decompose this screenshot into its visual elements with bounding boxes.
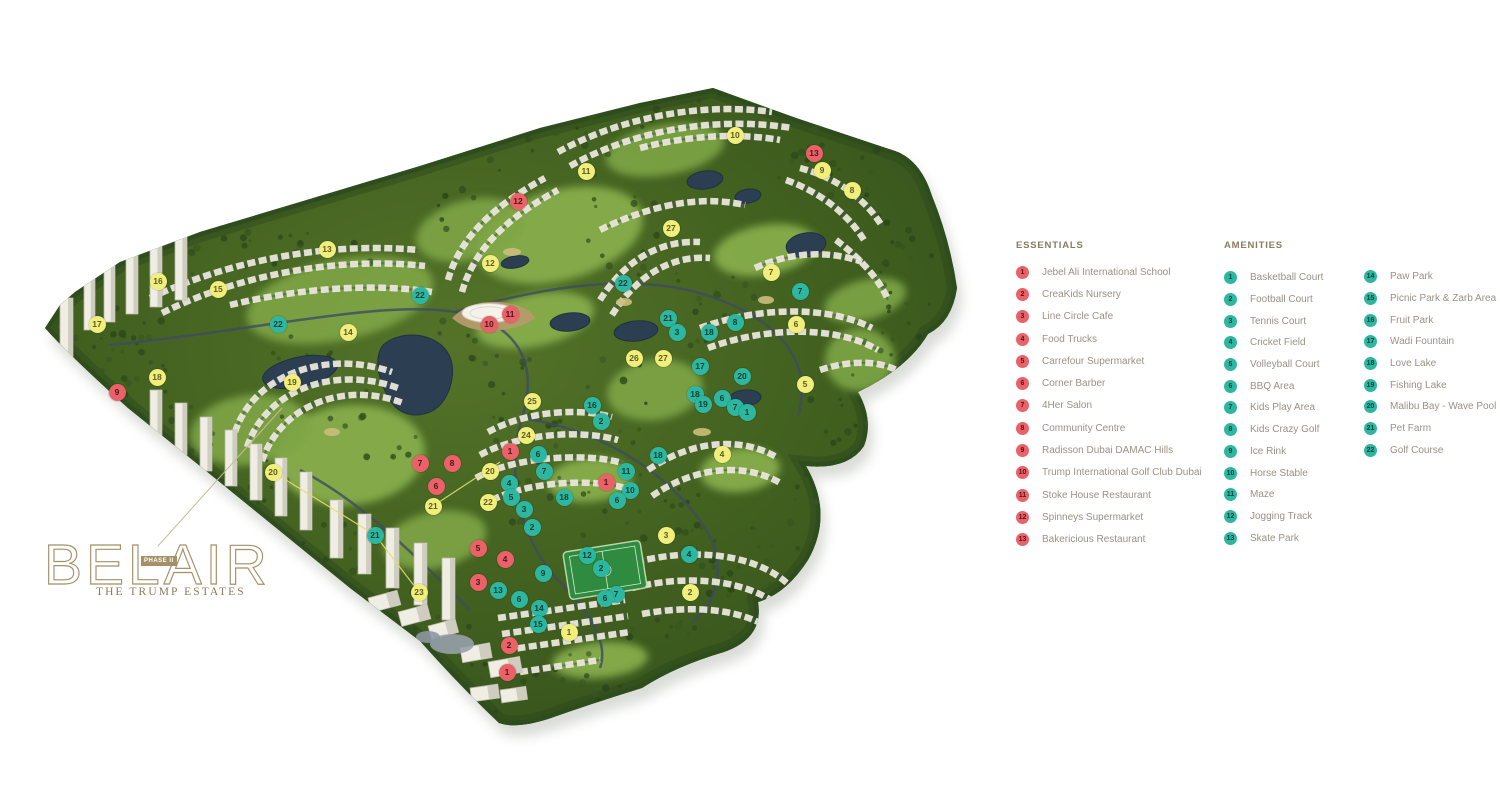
legend-badge: 2 (1016, 288, 1029, 301)
map-marker-yellow-26: 26 (626, 350, 643, 367)
legend-label: Kids Crazy Golf (1250, 424, 1319, 435)
legend-label: Football Court (1250, 294, 1313, 305)
legend-badge: 19 (1364, 379, 1377, 392)
legend-item: 22Golf Course (1364, 440, 1496, 462)
map-marker-teal-22: 22 (412, 287, 429, 304)
map-marker-red-10: 10 (481, 316, 498, 333)
logo-phase-badge: PHASE II (141, 556, 177, 566)
legend-badge: 1 (1016, 266, 1029, 279)
legend-label: Kids Play Area (1250, 402, 1315, 413)
legend-item: 18Love Lake (1364, 353, 1496, 375)
legend-badge: 8 (1016, 422, 1029, 435)
map-marker-yellow-12: 12 (482, 255, 499, 272)
legend-item: 7Kids Play Area (1224, 397, 1323, 419)
legend-badge: 17 (1364, 335, 1377, 348)
map-marker-yellow-16: 16 (150, 273, 167, 290)
map-marker-red-6: 6 (428, 478, 445, 495)
map-marker-teal-3: 3 (516, 501, 533, 518)
map-marker-yellow-8: 8 (844, 182, 861, 199)
essentials-list: 1Jebel Ali International School2CreaKids… (1016, 261, 1202, 551)
amenities-header: AMENITIES (1224, 240, 1283, 251)
legend-label: Wadi Fountain (1390, 336, 1454, 347)
map-marker-red-2: 2 (501, 637, 518, 654)
legend-label: Skate Park (1250, 533, 1299, 544)
map-marker-teal-18: 18 (556, 489, 573, 506)
legend-item: 12Jogging Track (1224, 506, 1323, 528)
map-marker-red-11: 11 (502, 306, 519, 323)
map-marker-teal-13: 13 (490, 582, 507, 599)
map-marker-yellow-13: 13 (319, 241, 336, 258)
legend-item: 15Picnic Park & Zarb Area (1364, 288, 1496, 310)
map-marker-yellow-21: 21 (425, 498, 442, 515)
legend-item: 10Horse Stable (1224, 462, 1323, 484)
map-marker-red-9: 9 (109, 384, 126, 401)
legend-label: Paw Park (1390, 271, 1433, 282)
map-marker-red-1: 1 (598, 474, 615, 491)
legend-label: Bakericious Restaurant (1042, 534, 1145, 545)
map-marker-yellow-27: 27 (655, 350, 672, 367)
map-marker-red-12: 12 (510, 193, 527, 210)
legend-badge: 6 (1224, 380, 1237, 393)
legend-item: 5Volleyball Court (1224, 354, 1323, 376)
legend-badge: 14 (1364, 270, 1377, 283)
map-marker-yellow-19: 19 (284, 374, 301, 391)
legend-badge: 8 (1224, 423, 1237, 436)
legend-label: Love Lake (1390, 358, 1436, 369)
logo-subtitle: THE TRUMP ESTATES (96, 586, 246, 598)
map-marker-teal-16: 16 (584, 397, 601, 414)
legend-item: 3Tennis Court (1224, 310, 1323, 332)
map-marker-teal-7: 7 (536, 463, 553, 480)
map-marker-yellow-10: 10 (727, 127, 744, 144)
map-marker-teal-4: 4 (681, 546, 698, 563)
amenities-list-col2: 14Paw Park15Picnic Park & Zarb Area16Fru… (1364, 266, 1496, 461)
map-marker-teal-21: 21 (367, 527, 384, 544)
legend-label: Jebel Ali International School (1042, 267, 1170, 278)
legend-item: 8Kids Crazy Golf (1224, 419, 1323, 441)
legend-item: 1Jebel Ali International School (1016, 261, 1202, 283)
legend-badge: 5 (1016, 355, 1029, 368)
map-marker-teal-14: 14 (531, 600, 548, 617)
map-marker-teal-15: 15 (530, 616, 547, 633)
legend-badge: 18 (1364, 357, 1377, 370)
map-marker-yellow-25: 25 (524, 393, 541, 410)
legend-label: Trump International Golf Club Dubai (1042, 467, 1202, 478)
legend-label: Basketball Court (1250, 272, 1323, 283)
legend-item: 6Corner Barber (1016, 372, 1202, 394)
map-marker-yellow-15: 15 (210, 281, 227, 298)
map-marker-teal-18: 18 (701, 324, 718, 341)
amenities-list-col1: 1Basketball Court2Football Court3Tennis … (1224, 267, 1323, 549)
legend-label: Picnic Park & Zarb Area (1390, 293, 1496, 304)
map-marker-teal-3: 3 (669, 324, 686, 341)
legend-badge: 15 (1364, 292, 1377, 305)
legend-badge: 3 (1224, 315, 1237, 328)
legend-badge: 6 (1016, 377, 1029, 390)
map-marker-yellow-17: 17 (89, 316, 106, 333)
map-marker-teal-2: 2 (593, 560, 610, 577)
legend-badge: 10 (1224, 467, 1237, 480)
legend-badge: 11 (1016, 489, 1029, 502)
legend-label: Volleyball Court (1250, 359, 1319, 370)
legend-label: Malibu Bay - Wave Pool (1390, 401, 1496, 412)
legend-label: Radisson Dubai DAMAC Hills (1042, 445, 1173, 456)
legend-item: 10Trump International Golf Club Dubai (1016, 462, 1202, 484)
map-marker-red-8: 8 (444, 455, 461, 472)
map-marker-red-4: 4 (497, 551, 514, 568)
legend-badge: 11 (1224, 488, 1237, 501)
map-marker-yellow-22: 22 (480, 494, 497, 511)
legend-label: Spinneys Supermarket (1042, 512, 1143, 523)
legend-label: Horse Stable (1250, 468, 1308, 479)
legend-badge: 4 (1016, 333, 1029, 346)
map-marker-yellow-14: 14 (340, 324, 357, 341)
legend-item: 3Line Circle Cafe (1016, 306, 1202, 328)
legend-item: 2Football Court (1224, 289, 1323, 311)
legend-item: 4Cricket Field (1224, 332, 1323, 354)
legend-item: 19Fishing Lake (1364, 374, 1496, 396)
legend-label: Community Centre (1042, 423, 1125, 434)
legend-item: 9Ice Rink (1224, 441, 1323, 463)
legend-badge: 7 (1016, 399, 1029, 412)
legend-label: CreaKids Nursery (1042, 289, 1121, 300)
legend-item: 4Food Trucks (1016, 328, 1202, 350)
legend-label: Ice Rink (1250, 446, 1286, 457)
legend-item: 16Fruit Park (1364, 309, 1496, 331)
legend-badge: 9 (1224, 445, 1237, 458)
legend-badge: 13 (1224, 532, 1237, 545)
legend-badge: 5 (1224, 358, 1237, 371)
legend-label: Maze (1250, 489, 1274, 500)
legend-item: 21Pet Farm (1364, 418, 1496, 440)
map-marker-teal-6: 6 (609, 492, 626, 509)
essentials-header: ESSENTIALS (1016, 240, 1084, 251)
legend-badge: 12 (1016, 511, 1029, 524)
legend-label: Pet Farm (1390, 423, 1431, 434)
legend-item: 14Paw Park (1364, 266, 1496, 288)
map-marker-red-1: 1 (502, 443, 519, 460)
map-marker-red-13: 13 (806, 145, 823, 162)
legend-item: 13Bakericious Restaurant (1016, 529, 1202, 551)
legend-badge: 12 (1224, 510, 1237, 523)
legend-label: Tennis Court (1250, 316, 1306, 327)
legend-badge: 10 (1016, 466, 1029, 479)
legend-item: 6BBQ Area (1224, 375, 1323, 397)
map-marker-yellow-1: 1 (561, 624, 578, 641)
belair-logo: BELAIR PHASE II THE TRUMP ESTATES (38, 518, 268, 613)
map-marker-teal-19: 19 (695, 396, 712, 413)
map-marker-teal-11: 11 (618, 463, 635, 480)
legend-item: 9Radisson Dubai DAMAC Hills (1016, 439, 1202, 461)
legend-badge: 13 (1016, 533, 1029, 546)
map-marker-teal-22: 22 (615, 275, 632, 292)
legend-item: 20Malibu Bay - Wave Pool (1364, 396, 1496, 418)
map-marker-teal-17: 17 (692, 358, 709, 375)
legend-label: Fruit Park (1390, 315, 1433, 326)
legend-item: 5Carrefour Supermarket (1016, 350, 1202, 372)
legend-badge: 3 (1016, 310, 1029, 323)
legend-item: 2CreaKids Nursery (1016, 283, 1202, 305)
legend-label: BBQ Area (1250, 381, 1294, 392)
legend-item: 74Her Salon (1016, 395, 1202, 417)
map-marker-yellow-24: 24 (518, 427, 535, 444)
legend-label: Golf Course (1390, 445, 1443, 456)
legend-item: 11Stoke House Restaurant (1016, 484, 1202, 506)
legend-badge: 4 (1224, 336, 1237, 349)
legend-item: 17Wadi Fountain (1364, 331, 1496, 353)
map-marker-teal-8: 8 (727, 314, 744, 331)
legend-item: 1Basketball Court (1224, 267, 1323, 289)
legend-badge: 20 (1364, 400, 1377, 413)
map-marker-yellow-20: 20 (265, 464, 282, 481)
map-marker-teal-9: 9 (535, 565, 552, 582)
map-marker-teal-22: 22 (270, 316, 287, 333)
legend-badge: 1 (1224, 271, 1237, 284)
legend-item: 13Skate Park (1224, 527, 1323, 549)
map-marker-yellow-3: 3 (658, 527, 675, 544)
legend-label: 4Her Salon (1042, 400, 1092, 411)
legend-label: Carrefour Supermarket (1042, 356, 1144, 367)
map-marker-yellow-23: 23 (411, 584, 428, 601)
legend-badge: 7 (1224, 401, 1237, 414)
map-marker-yellow-11: 11 (578, 163, 595, 180)
legend-label: Jogging Track (1250, 511, 1312, 522)
legend-badge: 22 (1364, 444, 1377, 457)
map-marker-yellow-18: 18 (149, 369, 166, 386)
map-marker-yellow-5: 5 (797, 376, 814, 393)
legend-label: Line Circle Cafe (1042, 311, 1113, 322)
map-marker-teal-18: 18 (650, 447, 667, 464)
map-marker-teal-1: 1 (739, 404, 756, 421)
legend-badge: 21 (1364, 422, 1377, 435)
map-marker-teal-12: 12 (579, 547, 596, 564)
legend-label: Fishing Lake (1390, 380, 1447, 391)
map-marker-teal-5: 5 (503, 489, 520, 506)
map-marker-yellow-20: 20 (482, 463, 499, 480)
map-marker-teal-6: 6 (530, 446, 547, 463)
legend-badge: 16 (1364, 314, 1377, 327)
map-marker-red-3: 3 (470, 574, 487, 591)
map-marker-red-5: 5 (470, 540, 487, 557)
legend-badge: 9 (1016, 444, 1029, 457)
map-marker-teal-20: 20 (734, 368, 751, 385)
map-marker-yellow-7: 7 (763, 264, 780, 281)
legend-label: Corner Barber (1042, 378, 1105, 389)
map-marker-yellow-6: 6 (788, 316, 805, 333)
map-marker-yellow-27: 27 (663, 220, 680, 237)
legend-item: 8Community Centre (1016, 417, 1202, 439)
map-marker-yellow-2: 2 (682, 584, 699, 601)
legend-label: Cricket Field (1250, 337, 1306, 348)
legend-item: 11Maze (1224, 484, 1323, 506)
map-marker-red-7: 7 (412, 455, 429, 472)
legend-label: Stoke House Restaurant (1042, 490, 1151, 501)
map-marker-teal-2: 2 (593, 413, 610, 430)
map-marker-teal-2: 2 (524, 519, 541, 536)
map-marker-teal-7: 7 (792, 283, 809, 300)
map-marker-teal-6: 6 (511, 591, 528, 608)
map-marker-yellow-4: 4 (714, 446, 731, 463)
legend-badge: 2 (1224, 293, 1237, 306)
map-marker-red-1: 1 (499, 664, 516, 681)
legend-item: 12Spinneys Supermarket (1016, 506, 1202, 528)
map-marker-teal-6: 6 (597, 590, 614, 607)
legend-label: Food Trucks (1042, 334, 1097, 345)
map-marker-yellow-9: 9 (814, 162, 831, 179)
